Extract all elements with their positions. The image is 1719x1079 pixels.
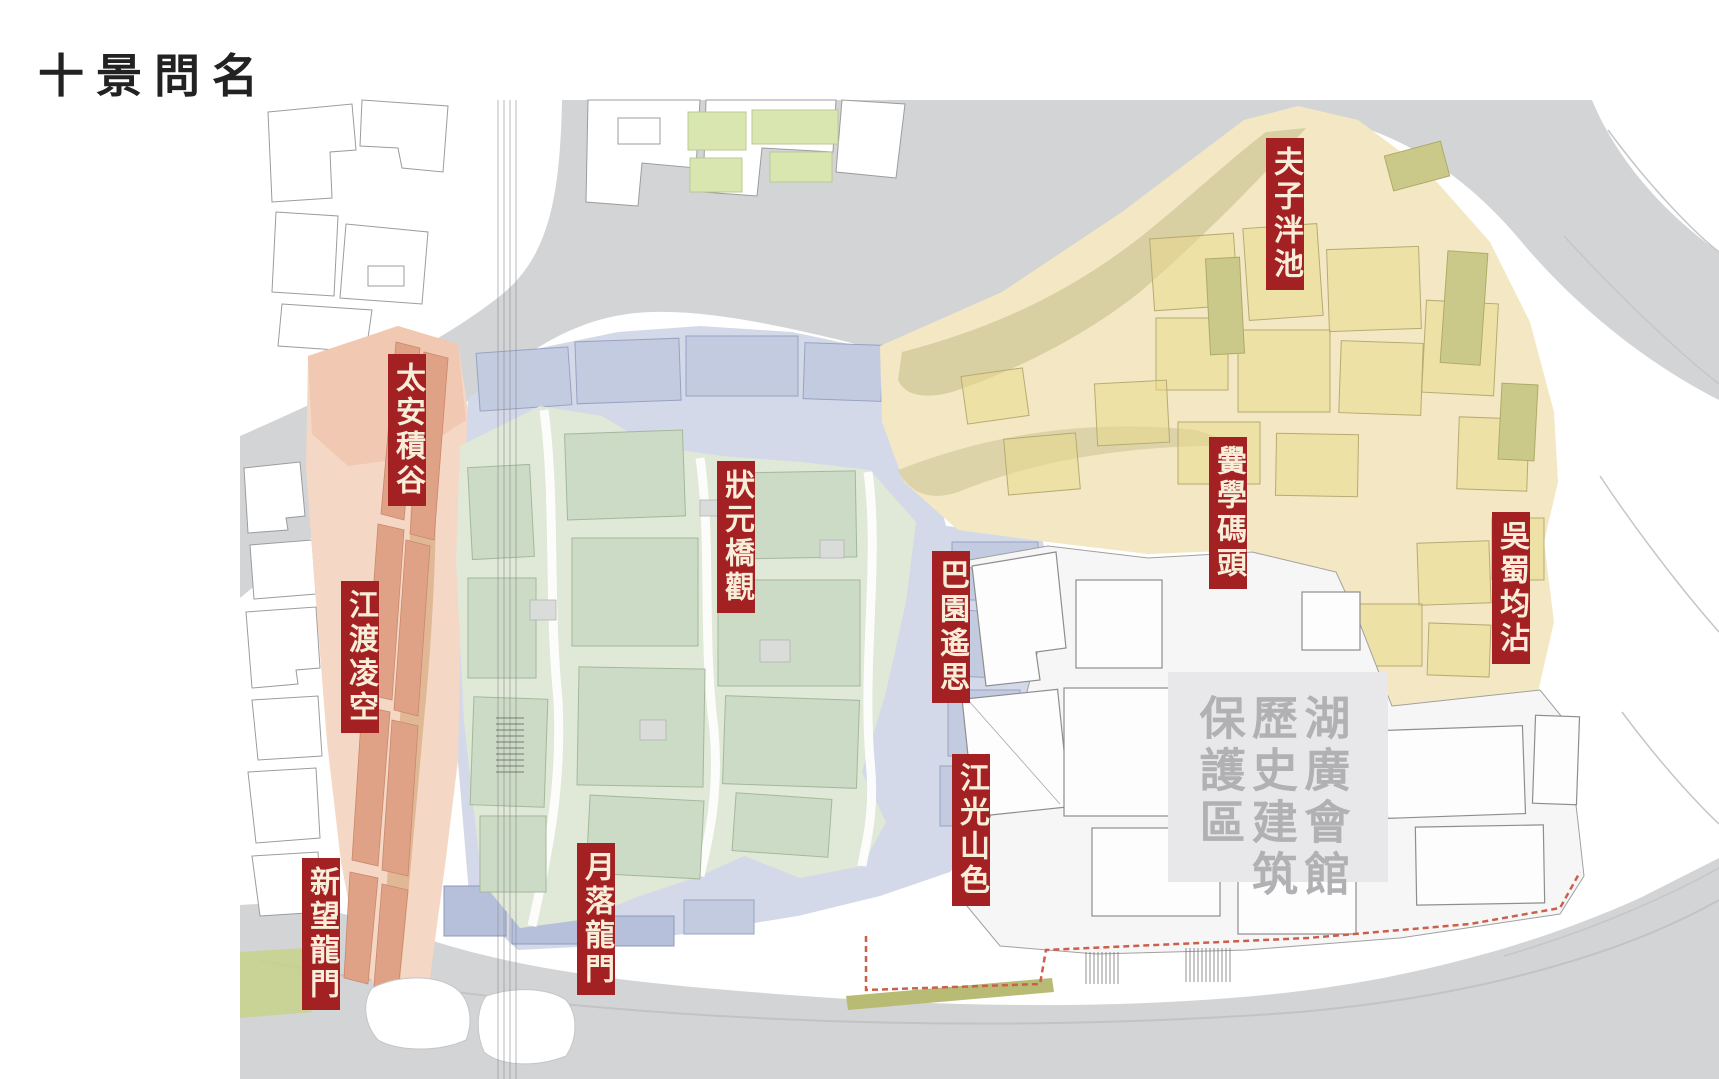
scene-label-jiangdu-lingkong: 江渡凌空 — [341, 581, 379, 733]
scene-label-hongxue-matou: 黌學碼頭 — [1209, 437, 1247, 589]
site-plan-map — [0, 0, 1719, 1079]
scene-label-zhuangyuan-qiaoguan: 狀元橋觀 — [717, 461, 755, 613]
zone-green — [456, 406, 916, 928]
scene-label-yueluo-longmen: 月落龍門 — [577, 843, 615, 995]
protection-area-caption: 湖廣會館 歷史建筑 保護區 — [1192, 694, 1349, 902]
scene-label-fuzi-panchi: 夫子泮池 — [1266, 138, 1304, 290]
scene-label-jiangguang-shanse: 江光山色 — [952, 754, 990, 906]
site-plan-page: 十景問名 — [0, 0, 1719, 1079]
scene-label-xinwang-longmen: 新望龍門 — [302, 858, 340, 1010]
scene-label-bayuan-yaosi: 巴園遙思 — [932, 551, 970, 703]
scene-label-taian-jigu: 太安積谷 — [388, 354, 426, 506]
white-buildings-top-left — [268, 100, 448, 352]
scene-label-wushu-junzhan: 吳蜀均沾 — [1492, 512, 1530, 664]
